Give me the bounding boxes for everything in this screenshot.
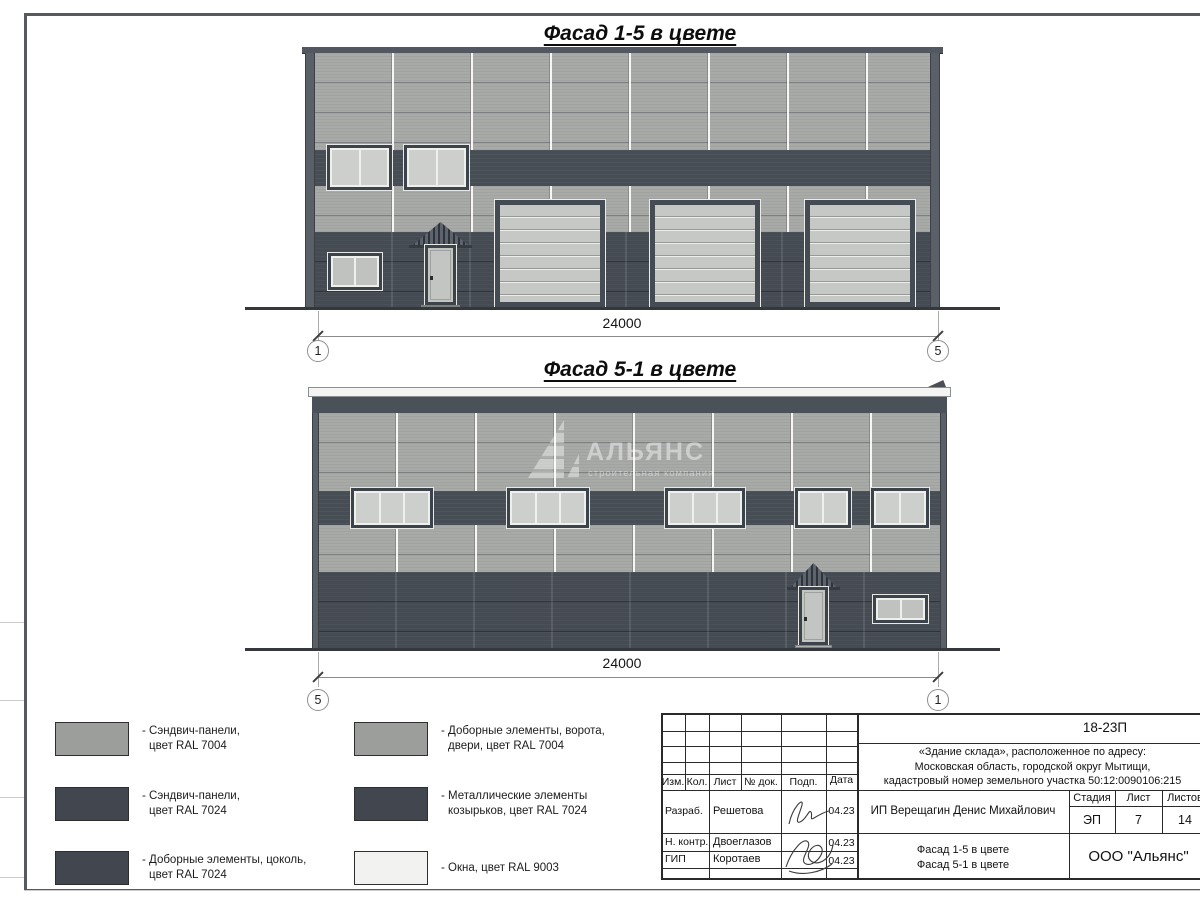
band-window (665, 488, 745, 528)
tb-line (661, 713, 663, 880)
entrance-door (799, 587, 828, 645)
sheet-label: Лист (1115, 792, 1162, 804)
door-handle (430, 276, 433, 280)
drawing-title-line: Фасад 5-1 в цвете (857, 858, 1069, 873)
frame-top (24, 13, 1200, 16)
wall (315, 53, 930, 307)
tb-line (661, 762, 857, 763)
lower-window (328, 253, 382, 290)
tb-header-izm: Изм. (661, 776, 685, 788)
legend-label: - Доборные элементы, цоколь, цвет RAL 70… (142, 853, 306, 883)
roof-flashing (308, 387, 951, 397)
tb-role: ГИП (665, 853, 686, 865)
legend-label: - Металлические элементы козырьков, цвет… (441, 789, 587, 819)
sheet-bottom-line (24, 890, 1200, 891)
lower-window (873, 595, 928, 623)
canopy-gable (413, 222, 468, 245)
tb-name: Решетова (713, 805, 763, 817)
address-line: кадастровый номер земельного участка 50:… (857, 774, 1200, 789)
tb-line (709, 713, 710, 880)
legend-text: - Окна, цвет RAL 9003 (441, 862, 559, 874)
dimension-line (318, 677, 938, 678)
frame-left (24, 13, 27, 891)
legend-text: цвет RAL 7024 (142, 804, 240, 819)
sandwich-panels-upper (315, 53, 930, 150)
drawing-titles: Фасад 1-5 в цвете Фасад 5-1 в цвете (857, 843, 1069, 873)
legend-text: - Сэндвич-панели, (142, 725, 240, 737)
axis-number: 1 (935, 693, 942, 707)
door-leaf (430, 250, 451, 300)
axis-marker: 1 (307, 340, 329, 362)
legend-text: - Доборные элементы, цоколь, (142, 854, 306, 866)
alyans-logo-icon (567, 454, 579, 478)
alyans-logo-icon (528, 420, 564, 478)
drawing-title-line: Фасад 1-5 в цвете (857, 843, 1069, 858)
corner-trim-right (930, 53, 940, 307)
legend-label: - Сэндвич-панели, цвет RAL 7004 (142, 724, 240, 754)
tb-header-kol: Кол. (685, 776, 709, 788)
legend-label: - Окна, цвет RAL 9003 (441, 861, 559, 876)
tb-role: Разраб. (665, 805, 703, 817)
facade-5-1-title: Фасад 5-1 в цвете (440, 358, 840, 382)
tb-line (661, 790, 1200, 791)
ground-line (245, 307, 1000, 310)
company-name: ООО "Альянс" (1069, 848, 1200, 865)
extension-line (938, 652, 939, 687)
facade-1-5-title: Фасад 1-5 в цвете (440, 22, 840, 46)
project-address: «Здание склада», расположенное по адресу… (857, 745, 1200, 789)
legend-swatch (354, 787, 428, 821)
band-window (507, 488, 589, 528)
margin-line (0, 700, 24, 701)
door-handle (804, 617, 807, 621)
band-window (404, 145, 469, 190)
tb-line (661, 878, 1200, 880)
legend-label: - Доборные элементы, ворота, двери, цвет… (441, 724, 605, 754)
company-watermark: АЛЬЯНС строительная компания (524, 418, 724, 488)
legend-swatch (55, 851, 129, 885)
dimension-value: 24000 (562, 655, 682, 671)
door-leaf (804, 592, 823, 640)
facade-1-5-drawing (305, 47, 940, 310)
legend-text: - Металлические элементы (441, 790, 587, 802)
tb-name: Коротаев (713, 853, 761, 865)
signature (783, 794, 833, 832)
ridge-peak (928, 380, 946, 387)
margin-line (0, 797, 24, 798)
margin-line (0, 877, 24, 878)
legend-swatch (354, 851, 428, 885)
axis-marker: 5 (927, 340, 949, 362)
legend-label: - Сэндвич-панели, цвет RAL 7024 (142, 789, 240, 819)
legend-swatch (55, 722, 129, 756)
legend-text: двери, цвет RAL 7004 (441, 739, 605, 754)
tb-role: Н. контр. (665, 836, 708, 848)
extension-line (318, 652, 319, 687)
gate-door (650, 200, 760, 307)
gate-door (805, 200, 915, 307)
legend-text: - Сэндвич-панели, (142, 790, 240, 802)
axis-marker: 5 (307, 689, 329, 711)
tb-line (1069, 806, 1200, 807)
axis-number: 5 (315, 693, 322, 707)
band-window (871, 488, 929, 528)
client-name: ИП Верещагин Денис Михайлович (857, 805, 1069, 817)
tb-line (857, 743, 1200, 744)
door-canopy (791, 563, 836, 587)
ground-line (245, 648, 1000, 651)
parapet-band (312, 397, 947, 414)
stage-value: ЭП (1069, 813, 1115, 827)
tb-header-doc: № док. (741, 776, 781, 788)
tb-line (661, 731, 857, 732)
band-window (795, 488, 851, 528)
gate-door (495, 200, 605, 307)
sandwich-panels-mid (319, 525, 940, 572)
tb-name: Двоеглазов (713, 836, 771, 848)
axis-number: 5 (935, 344, 942, 358)
dimension-value: 24000 (562, 315, 682, 331)
legend-text: цвет RAL 7024 (142, 868, 306, 883)
plinth-panels (319, 572, 940, 648)
project-code: 18-23П (1045, 720, 1165, 735)
signature (780, 833, 838, 875)
corner-trim-left (312, 413, 319, 648)
watermark-name: АЛЬЯНС (586, 438, 705, 467)
watermark-subtitle: строительная компания (588, 468, 714, 479)
drawing-sheet: Фасад 1-5 в цвете (0, 0, 1200, 900)
legend-swatch (354, 722, 428, 756)
dimension-line (318, 336, 938, 337)
sheets-total: 14 (1162, 813, 1200, 827)
legend-text: цвет RAL 7004 (142, 739, 240, 754)
axis-number: 1 (315, 344, 322, 358)
band-window (327, 145, 392, 190)
wall: АЛЬЯНС строительная компания (319, 413, 940, 648)
legend-swatch (55, 787, 129, 821)
tb-header-podp: Подп. (781, 776, 826, 788)
sheets-label: Листов (1162, 792, 1200, 804)
corner-trim-left (305, 53, 315, 307)
margin-line (0, 622, 24, 623)
axis-marker: 1 (927, 689, 949, 711)
tb-header-list: Лист (709, 776, 741, 788)
corner-trim-right (940, 413, 947, 648)
canopy-gable (791, 563, 836, 587)
tb-line (661, 746, 857, 747)
sheet-number: 7 (1115, 813, 1162, 827)
door-canopy (413, 222, 468, 245)
address-line: «Здание склада», расположенное по адресу… (857, 745, 1200, 760)
band-window (351, 488, 433, 528)
entrance-door (425, 245, 456, 305)
stage-label: Стадия (1069, 792, 1115, 804)
tb-header-date: Дата (826, 774, 857, 786)
tb-line (661, 833, 1200, 834)
facade-5-1-drawing: АЛЬЯНС строительная компания (312, 387, 947, 650)
legend-text: козырьков, цвет RAL 7024 (441, 804, 587, 819)
address-line: Московская область, городской округ Мыти… (857, 760, 1200, 775)
legend-text: - Доборные элементы, ворота, (441, 725, 605, 737)
